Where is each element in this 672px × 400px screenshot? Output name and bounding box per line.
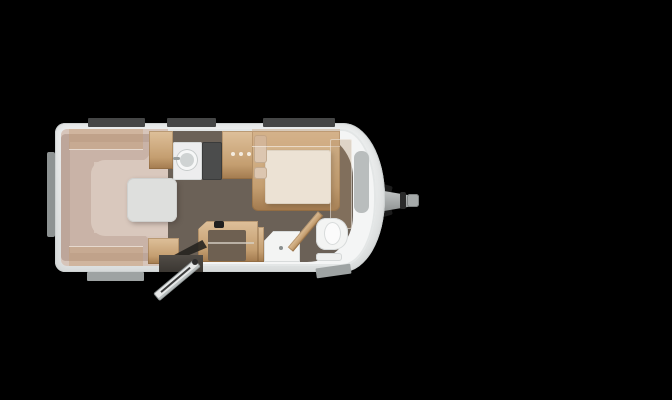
desk-rail xyxy=(208,242,254,244)
kitchen-cabinet xyxy=(222,131,256,179)
tall-cabinet xyxy=(149,131,173,169)
hitch-coupling-tip xyxy=(407,194,419,207)
window-rear-wall xyxy=(47,152,55,237)
hob-knob-icon xyxy=(247,152,251,156)
toilet-bowl xyxy=(324,222,341,245)
hob-knob-icon xyxy=(239,152,243,156)
bed-mattress xyxy=(265,150,331,204)
window-top-rear xyxy=(88,118,145,127)
floorplan-canvas xyxy=(0,0,672,400)
faucet-icon xyxy=(173,157,180,160)
front-storage-panel xyxy=(354,151,369,213)
caravan-body xyxy=(55,123,385,272)
overhead-locker-bottom xyxy=(69,246,143,266)
washbasin-shelf xyxy=(316,253,342,261)
window-top-bed xyxy=(263,118,335,127)
sink-bowl xyxy=(180,153,194,167)
window-bottom-rear xyxy=(87,272,144,281)
bed-pillow xyxy=(254,167,267,179)
shower-surround xyxy=(258,227,264,262)
hob-knob-icon xyxy=(231,152,235,156)
door-hinge-icon xyxy=(192,259,198,265)
shower-drain-icon xyxy=(279,246,283,250)
window-top-kitchen xyxy=(167,118,216,127)
caravan-interior xyxy=(61,129,376,266)
overhead-locker-top xyxy=(69,129,143,150)
desk-kneehole xyxy=(208,230,246,261)
desk-object xyxy=(214,221,224,228)
hitch-coupling-band xyxy=(400,192,406,209)
dining-table xyxy=(127,178,177,222)
kitchen-hob xyxy=(202,142,222,180)
overhead-locker-bed xyxy=(252,129,340,147)
backrest-rear xyxy=(61,134,70,261)
wardrobe-panel xyxy=(330,139,352,229)
